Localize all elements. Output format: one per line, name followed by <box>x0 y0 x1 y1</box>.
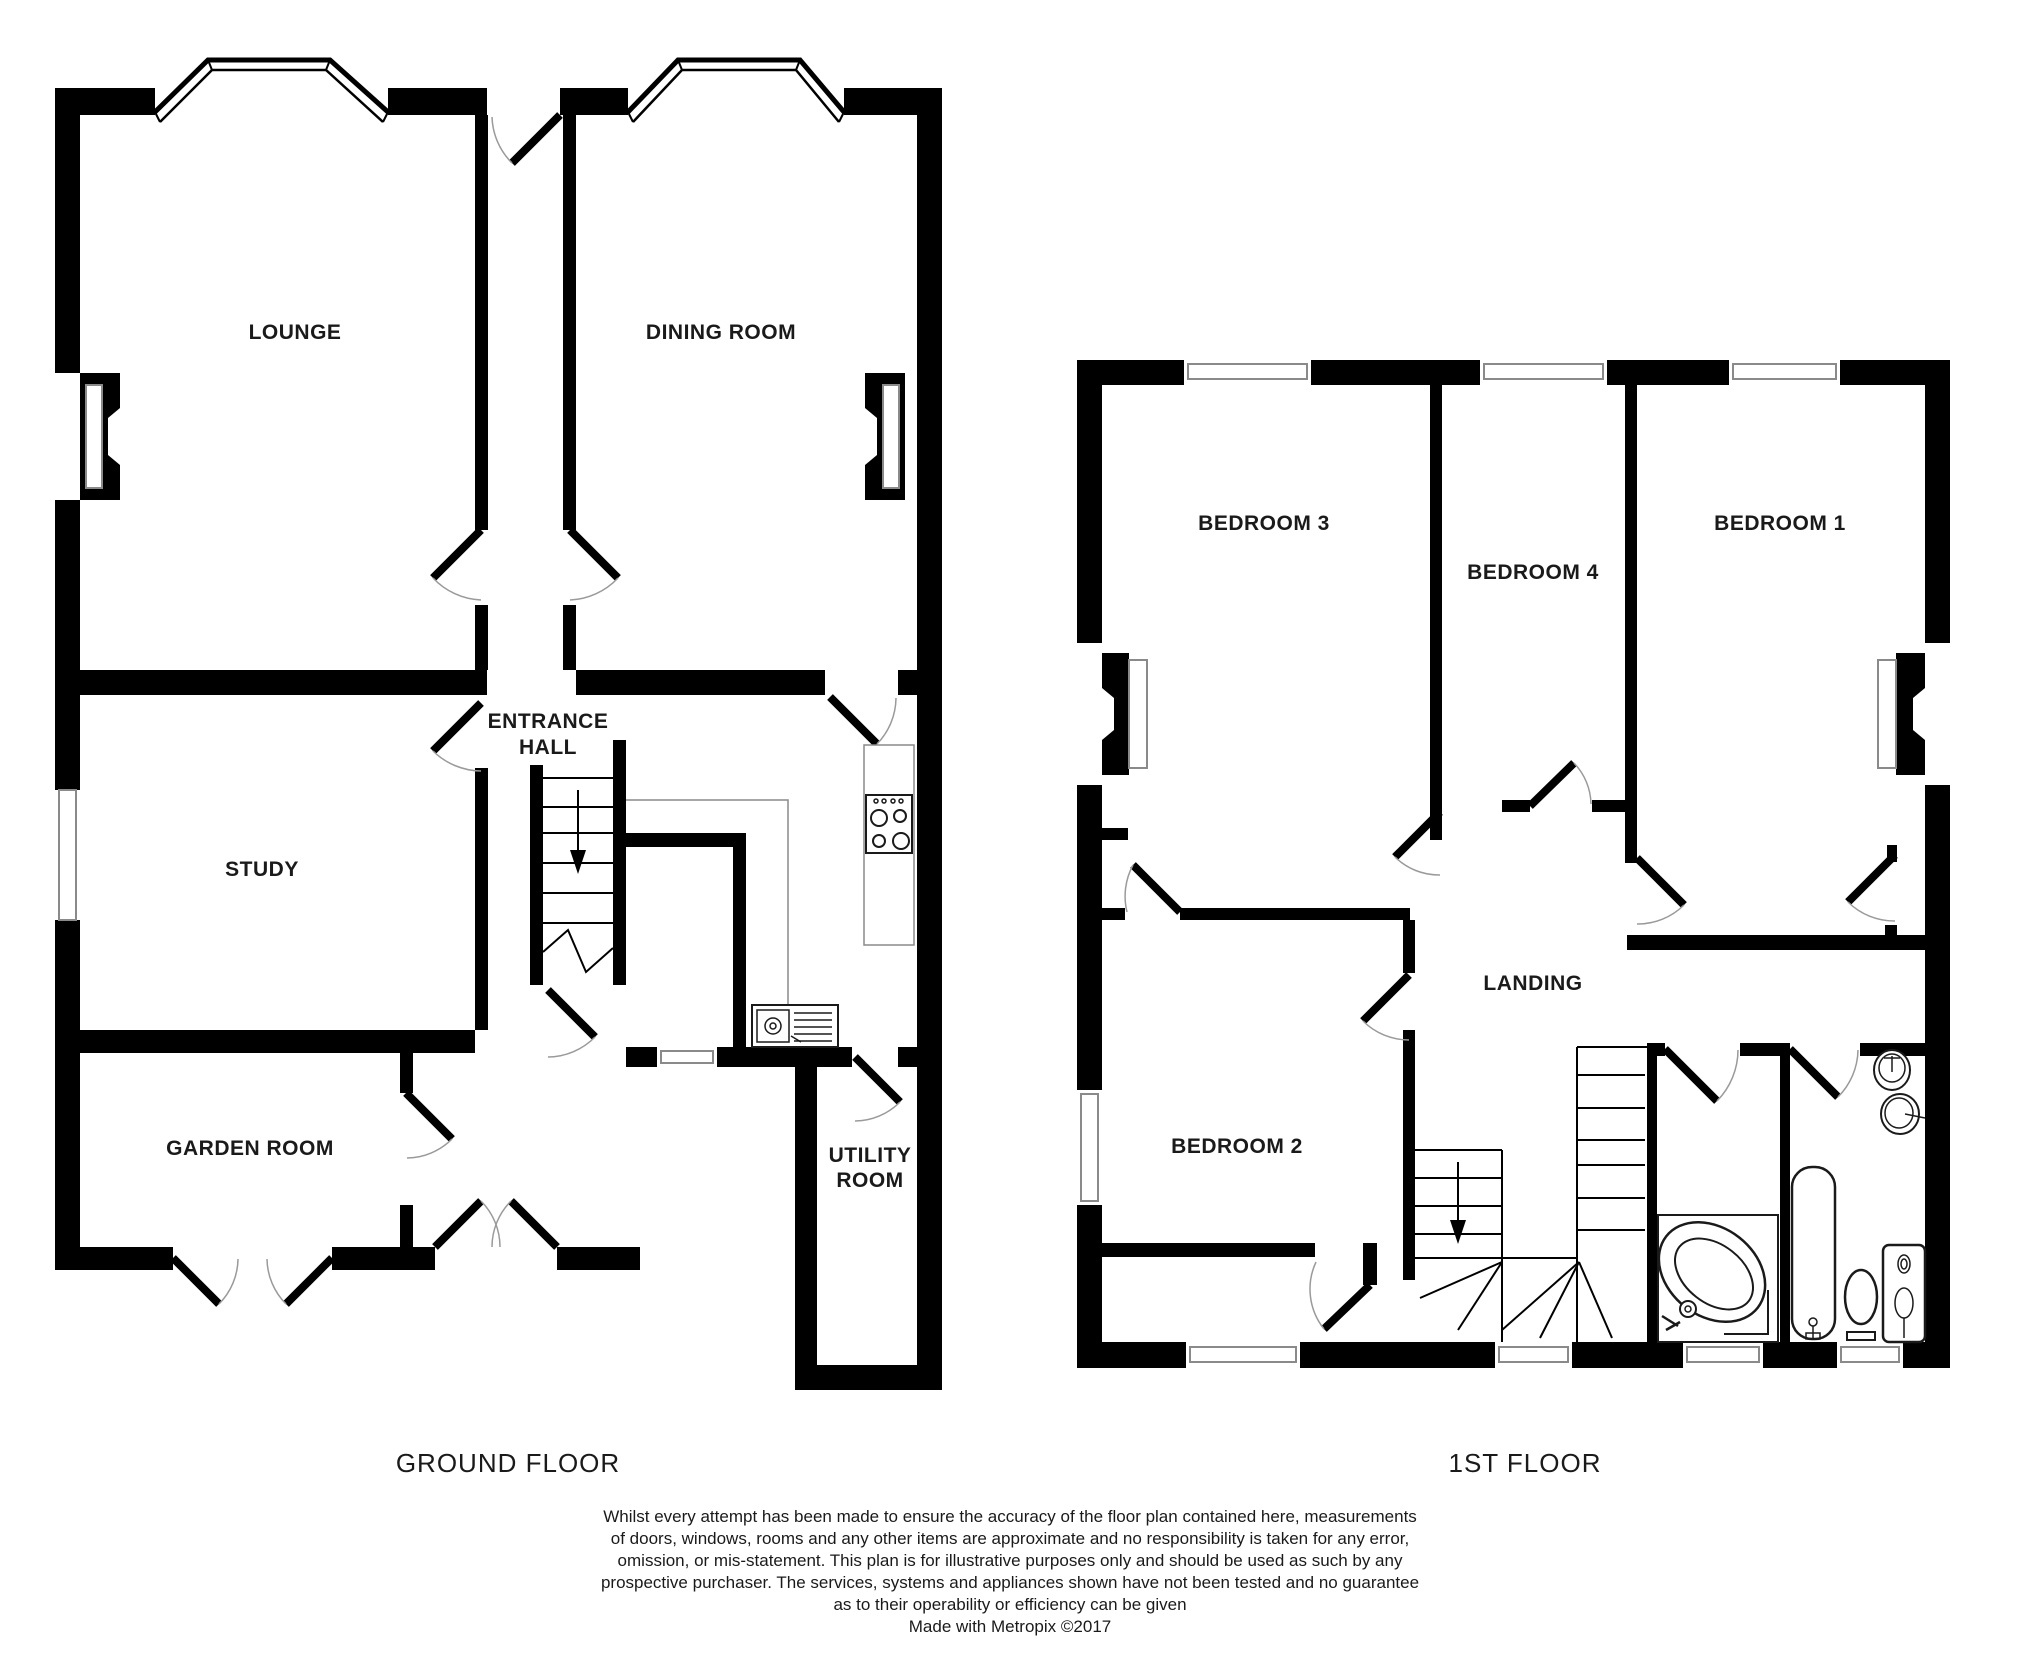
first-floor-title: 1ST FLOOR <box>1448 1448 1601 1478</box>
bedroom3-label: BEDROOM 3 <box>1198 512 1330 535</box>
bedroom2-door <box>1363 975 1409 1040</box>
dining-bay-window <box>628 60 844 122</box>
bedroom1-side-window <box>1878 660 1896 768</box>
dining-door <box>570 530 618 600</box>
bedroom1-chimney-breast <box>1878 653 1925 775</box>
bedroom2-window <box>1081 1094 1098 1201</box>
study-door <box>433 703 481 771</box>
disclaimer-line-5: as to their operability or efficiency ca… <box>833 1595 1186 1614</box>
kitchen-counter <box>626 745 914 1008</box>
entrance-hall-label-line1: ENTRANCE <box>488 710 609 733</box>
metropix-credit: Made with Metropix ©2017 <box>909 1617 1111 1636</box>
landing-label: LANDING <box>1483 972 1582 995</box>
disclaimer-line-4: prospective purchaser. The services, sys… <box>601 1573 1419 1592</box>
utility-room-label-line1: UTILITY <box>829 1144 912 1167</box>
sink-icon <box>752 1005 838 1047</box>
dining-window <box>883 385 899 488</box>
bedroom4-label: BEDROOM 4 <box>1467 561 1599 584</box>
rear-window-2 <box>1499 1347 1568 1362</box>
disclaimer-line-2: of doors, windows, rooms and any other i… <box>611 1529 1409 1548</box>
dining-chimney-breast <box>865 373 905 500</box>
bedroom4-door <box>1395 812 1440 875</box>
kitchen-door <box>830 697 896 744</box>
bedroom3-side-window <box>1129 660 1147 768</box>
rear-room-door <box>1310 1262 1370 1329</box>
lounge-window <box>86 385 102 488</box>
bedroom1-label: BEDROOM 1 <box>1714 512 1846 535</box>
bedroom3-chimney-breast <box>1102 653 1147 775</box>
shower-icon <box>1792 1167 1835 1339</box>
lounge-door <box>433 530 481 600</box>
ground-floor-title: GROUND FLOOR <box>396 1448 620 1478</box>
bathroom-door <box>1665 1049 1738 1101</box>
ground-floor-plan: LOUNGE DINING ROOM ENTRANCE HALL STUDY G… <box>55 60 942 1478</box>
basin-icon-2 <box>1881 1094 1925 1134</box>
utility-door <box>855 1057 900 1121</box>
garden-room-door <box>406 1093 452 1158</box>
toilet-icon <box>1845 1270 1877 1340</box>
bedroom3-door <box>1125 865 1180 912</box>
study-window <box>59 790 76 920</box>
lounge-chimney-breast <box>80 373 120 500</box>
bedroom1-second-door <box>1848 855 1895 921</box>
stairs-down-arrow-icon <box>1450 1162 1466 1244</box>
stove-icon <box>866 795 912 853</box>
bedroom1-top-window <box>1733 364 1836 379</box>
lounge-bay-window <box>155 60 388 122</box>
bidet-icon <box>1883 1245 1925 1342</box>
lounge-label: LOUNGE <box>249 321 342 344</box>
entrance-hall-label-line2: HALL <box>519 736 577 759</box>
bath-icon <box>1639 1202 1785 1343</box>
ground-floor-stairs <box>543 778 613 972</box>
front-door <box>492 115 560 163</box>
bedroom4-cupboard-door <box>1530 763 1591 806</box>
bathroom-window <box>1687 1347 1759 1362</box>
disclaimer-line-1: Whilst every attempt has been made to en… <box>603 1507 1417 1526</box>
basin-icon-1 <box>1874 1050 1910 1090</box>
stairs-bottom-door <box>548 990 595 1057</box>
rear-window-1 <box>1190 1347 1296 1362</box>
first-floor-stairs <box>1415 1047 1647 1342</box>
bedroom4-top-window <box>1484 364 1603 379</box>
garden-room-label: GARDEN ROOM <box>166 1137 334 1160</box>
bedroom2-label: BEDROOM 2 <box>1171 1135 1303 1158</box>
floorplan-drawing: LOUNGE DINING ROOM ENTRANCE HALL STUDY G… <box>0 0 2025 1676</box>
disclaimer-line-3: omission, or mis-statement. This plan is… <box>618 1551 1403 1570</box>
bedroom1-door <box>1637 858 1684 924</box>
bedroom3-top-window <box>1188 364 1307 379</box>
first-floor-plan: BEDROOM 3 BEDROOM 4 BEDROOM 1 BEDROOM 2 … <box>1077 360 1950 1478</box>
shower-room-window <box>1841 1347 1899 1362</box>
ground-floor-walls <box>55 88 942 1390</box>
back-double-doors <box>435 1201 557 1247</box>
kitchen-window <box>661 1051 713 1063</box>
study-label: STUDY <box>225 858 299 881</box>
dining-room-label: DINING ROOM <box>646 321 796 344</box>
floorplan-page: LOUNGE DINING ROOM ENTRANCE HALL STUDY G… <box>0 0 2025 1676</box>
garden-french-doors <box>173 1258 332 1304</box>
shower-room-door <box>1790 1049 1858 1097</box>
disclaimer-block: Whilst every attempt has been made to en… <box>601 1507 1419 1636</box>
utility-room-label-line2: ROOM <box>836 1169 903 1192</box>
